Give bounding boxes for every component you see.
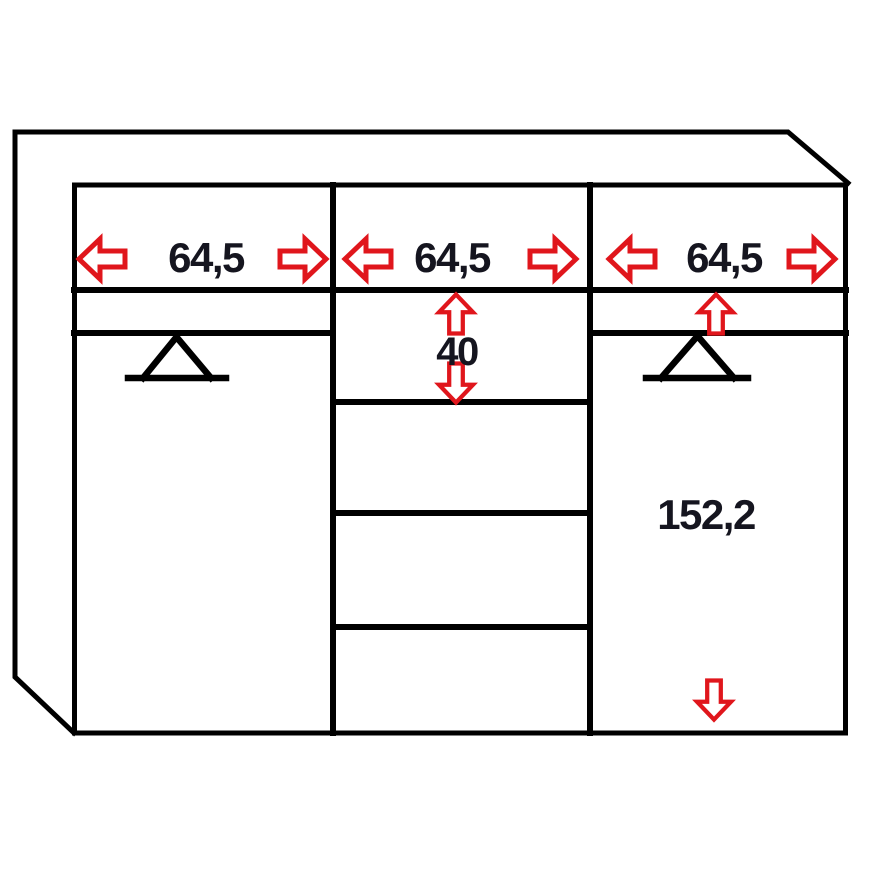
right-section-arrow-right-icon: [789, 239, 835, 279]
middle-section-arrow-right-icon: [530, 239, 576, 279]
cabinet-top-face-edge: [15, 132, 848, 183]
middle-section-arrow-left-icon: [345, 239, 391, 279]
drawer-height-arrow-up-icon: [439, 294, 473, 333]
dimension-label-left-section-width: 64,5: [168, 237, 244, 279]
dimension-label-middle-section-width: 64,5: [414, 237, 490, 279]
dimension-label-door-height: 152,2: [657, 494, 755, 536]
dimension-label-right-section-width: 64,5: [686, 237, 762, 279]
clothes-rail-right-icon: [646, 336, 748, 378]
cabinet-line-drawing: [0, 0, 870, 870]
left-section-arrow-right-icon: [280, 239, 326, 279]
door-height-arrow-up-icon: [699, 294, 733, 333]
door-height-arrow-down-icon: [697, 680, 731, 719]
clothes-rail-left-icon: [128, 337, 226, 378]
right-section-arrow-left-icon: [609, 239, 655, 279]
cabinet-left-face-edge: [15, 132, 74, 733]
left-section-arrow-left-icon: [79, 239, 125, 279]
wardrobe-dimension-diagram: 64,5 64,5 64,5 40 152,2: [0, 0, 870, 870]
dimension-label-drawer-height: 40: [436, 332, 478, 372]
